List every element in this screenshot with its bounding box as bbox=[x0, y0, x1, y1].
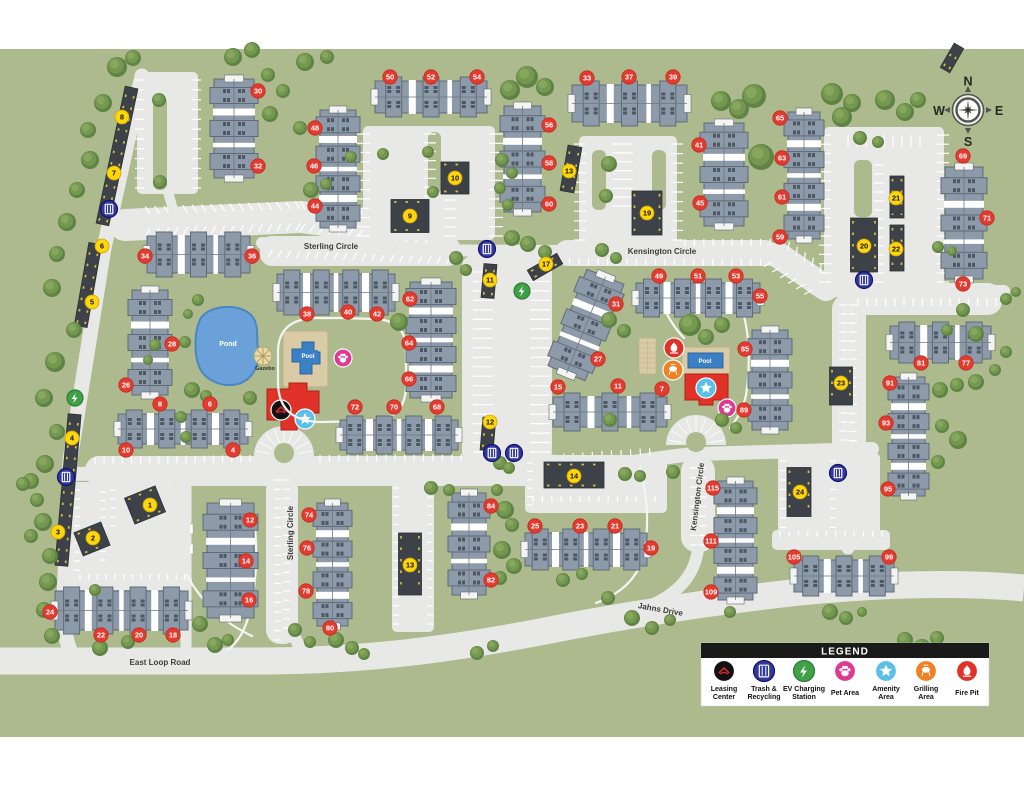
svg-text:50: 50 bbox=[386, 73, 394, 82]
svg-text:38: 38 bbox=[303, 310, 311, 319]
svg-text:EV Charging: EV Charging bbox=[783, 686, 825, 693]
svg-text:44: 44 bbox=[311, 202, 320, 211]
svg-text:60: 60 bbox=[545, 200, 553, 209]
svg-text:3: 3 bbox=[56, 528, 60, 537]
svg-text:109: 109 bbox=[705, 588, 718, 597]
svg-text:89: 89 bbox=[740, 406, 748, 415]
svg-text:85: 85 bbox=[741, 345, 749, 354]
svg-text:7: 7 bbox=[660, 385, 664, 394]
svg-text:74: 74 bbox=[305, 511, 314, 520]
svg-text:20: 20 bbox=[860, 242, 868, 251]
svg-text:68: 68 bbox=[433, 403, 441, 412]
svg-text:73: 73 bbox=[959, 280, 967, 289]
svg-text:9: 9 bbox=[408, 212, 412, 221]
svg-text:25: 25 bbox=[531, 522, 539, 531]
svg-text:15: 15 bbox=[554, 383, 562, 392]
svg-text:Leasing: Leasing bbox=[711, 686, 737, 693]
svg-text:22: 22 bbox=[892, 245, 900, 254]
svg-text:37: 37 bbox=[625, 73, 633, 82]
svg-text:64: 64 bbox=[405, 339, 414, 348]
svg-text:23: 23 bbox=[576, 522, 584, 531]
svg-text:1: 1 bbox=[148, 501, 152, 510]
svg-text:12: 12 bbox=[246, 516, 254, 525]
svg-text:33: 33 bbox=[583, 74, 591, 83]
svg-text:S: S bbox=[964, 135, 972, 149]
svg-text:6: 6 bbox=[208, 400, 212, 409]
svg-text:Center: Center bbox=[713, 694, 735, 701]
svg-text:Pool: Pool bbox=[302, 354, 315, 360]
svg-text:Pet Area: Pet Area bbox=[831, 690, 859, 697]
svg-text:63: 63 bbox=[778, 154, 786, 163]
svg-text:East Loop Road: East Loop Road bbox=[130, 658, 191, 667]
svg-text:31: 31 bbox=[612, 300, 620, 309]
svg-text:Grilling: Grilling bbox=[914, 686, 939, 693]
svg-text:10: 10 bbox=[122, 446, 130, 455]
svg-text:Sterling Circle: Sterling Circle bbox=[286, 505, 295, 560]
svg-text:77: 77 bbox=[962, 359, 970, 368]
svg-text:51: 51 bbox=[694, 272, 702, 281]
svg-text:99: 99 bbox=[885, 553, 893, 562]
svg-text:48: 48 bbox=[311, 124, 319, 133]
svg-text:17: 17 bbox=[542, 260, 550, 269]
svg-text:52: 52 bbox=[427, 73, 435, 82]
svg-text:115: 115 bbox=[707, 484, 719, 493]
svg-text:11: 11 bbox=[614, 382, 622, 391]
svg-text:5: 5 bbox=[90, 298, 94, 307]
svg-text:12: 12 bbox=[486, 418, 494, 427]
svg-text:81: 81 bbox=[917, 359, 925, 368]
svg-text:16: 16 bbox=[245, 596, 253, 605]
svg-text:58: 58 bbox=[545, 159, 553, 168]
svg-text:E: E bbox=[995, 104, 1003, 118]
svg-text:93: 93 bbox=[882, 419, 890, 428]
svg-text:66: 66 bbox=[405, 375, 413, 384]
svg-text:14: 14 bbox=[570, 472, 579, 481]
svg-text:40: 40 bbox=[344, 308, 352, 317]
svg-text:36: 36 bbox=[248, 252, 256, 261]
svg-text:95: 95 bbox=[884, 485, 892, 494]
svg-text:62: 62 bbox=[406, 295, 414, 304]
svg-text:71: 71 bbox=[983, 214, 991, 223]
svg-text:Sterling Circle: Sterling Circle bbox=[304, 242, 359, 251]
svg-text:55: 55 bbox=[756, 292, 764, 301]
svg-text:26: 26 bbox=[122, 381, 130, 390]
svg-text:Kensington Circle: Kensington Circle bbox=[628, 247, 697, 256]
svg-text:24: 24 bbox=[46, 608, 55, 617]
svg-text:23: 23 bbox=[837, 379, 845, 388]
svg-text:Fire Pit: Fire Pit bbox=[955, 690, 979, 697]
svg-text:20: 20 bbox=[135, 631, 143, 640]
svg-text:13: 13 bbox=[565, 167, 573, 176]
svg-text:27: 27 bbox=[594, 355, 602, 364]
svg-text:59: 59 bbox=[776, 233, 784, 242]
svg-text:24: 24 bbox=[796, 488, 805, 497]
svg-text:56: 56 bbox=[545, 121, 553, 130]
svg-text:Pool: Pool bbox=[699, 359, 712, 365]
svg-text:13: 13 bbox=[406, 561, 414, 570]
svg-text:69: 69 bbox=[959, 152, 967, 161]
svg-text:Recycling: Recycling bbox=[747, 694, 780, 701]
svg-text:LEGEND: LEGEND bbox=[821, 647, 869, 658]
svg-text:30: 30 bbox=[254, 87, 262, 96]
svg-text:Area: Area bbox=[918, 694, 934, 701]
svg-text:W: W bbox=[933, 104, 945, 118]
svg-text:6: 6 bbox=[100, 242, 104, 251]
svg-text:65: 65 bbox=[776, 114, 784, 123]
svg-text:14: 14 bbox=[242, 557, 251, 566]
svg-text:18: 18 bbox=[169, 631, 177, 640]
svg-text:32: 32 bbox=[254, 162, 262, 171]
svg-text:21: 21 bbox=[892, 194, 900, 203]
svg-text:Trash &: Trash & bbox=[751, 686, 777, 693]
svg-text:2: 2 bbox=[91, 534, 95, 543]
svg-text:34: 34 bbox=[141, 252, 150, 261]
svg-text:39: 39 bbox=[669, 73, 677, 82]
svg-text:111: 111 bbox=[705, 537, 717, 546]
svg-text:61: 61 bbox=[778, 193, 786, 202]
svg-text:70: 70 bbox=[390, 403, 398, 412]
svg-text:105: 105 bbox=[788, 553, 801, 562]
svg-text:8: 8 bbox=[120, 113, 124, 122]
svg-text:76: 76 bbox=[303, 544, 311, 553]
svg-text:19: 19 bbox=[647, 544, 655, 553]
svg-text:8: 8 bbox=[158, 400, 162, 409]
svg-text:21: 21 bbox=[611, 522, 619, 531]
svg-text:Gazebo: Gazebo bbox=[255, 366, 276, 372]
svg-text:46: 46 bbox=[310, 162, 318, 171]
svg-text:11: 11 bbox=[486, 276, 494, 285]
svg-text:Amenity: Amenity bbox=[872, 686, 900, 693]
svg-text:22: 22 bbox=[97, 631, 105, 640]
svg-text:10: 10 bbox=[451, 174, 459, 183]
svg-text:78: 78 bbox=[302, 587, 310, 596]
svg-text:49: 49 bbox=[655, 272, 663, 281]
svg-text:72: 72 bbox=[351, 403, 359, 412]
svg-text:42: 42 bbox=[373, 310, 381, 319]
svg-text:N: N bbox=[963, 75, 972, 89]
svg-text:80: 80 bbox=[326, 624, 334, 633]
svg-text:41: 41 bbox=[695, 141, 703, 150]
svg-text:28: 28 bbox=[168, 340, 176, 349]
svg-text:19: 19 bbox=[643, 209, 651, 218]
svg-text:Pond: Pond bbox=[219, 341, 237, 348]
svg-text:54: 54 bbox=[473, 73, 482, 82]
svg-text:Station: Station bbox=[792, 694, 816, 701]
svg-text:45: 45 bbox=[696, 199, 704, 208]
svg-text:82: 82 bbox=[487, 576, 495, 585]
svg-text:53: 53 bbox=[732, 272, 740, 281]
svg-text:84: 84 bbox=[487, 502, 496, 511]
svg-text:Area: Area bbox=[878, 694, 894, 701]
svg-text:7: 7 bbox=[112, 169, 116, 178]
svg-text:91: 91 bbox=[886, 379, 894, 388]
